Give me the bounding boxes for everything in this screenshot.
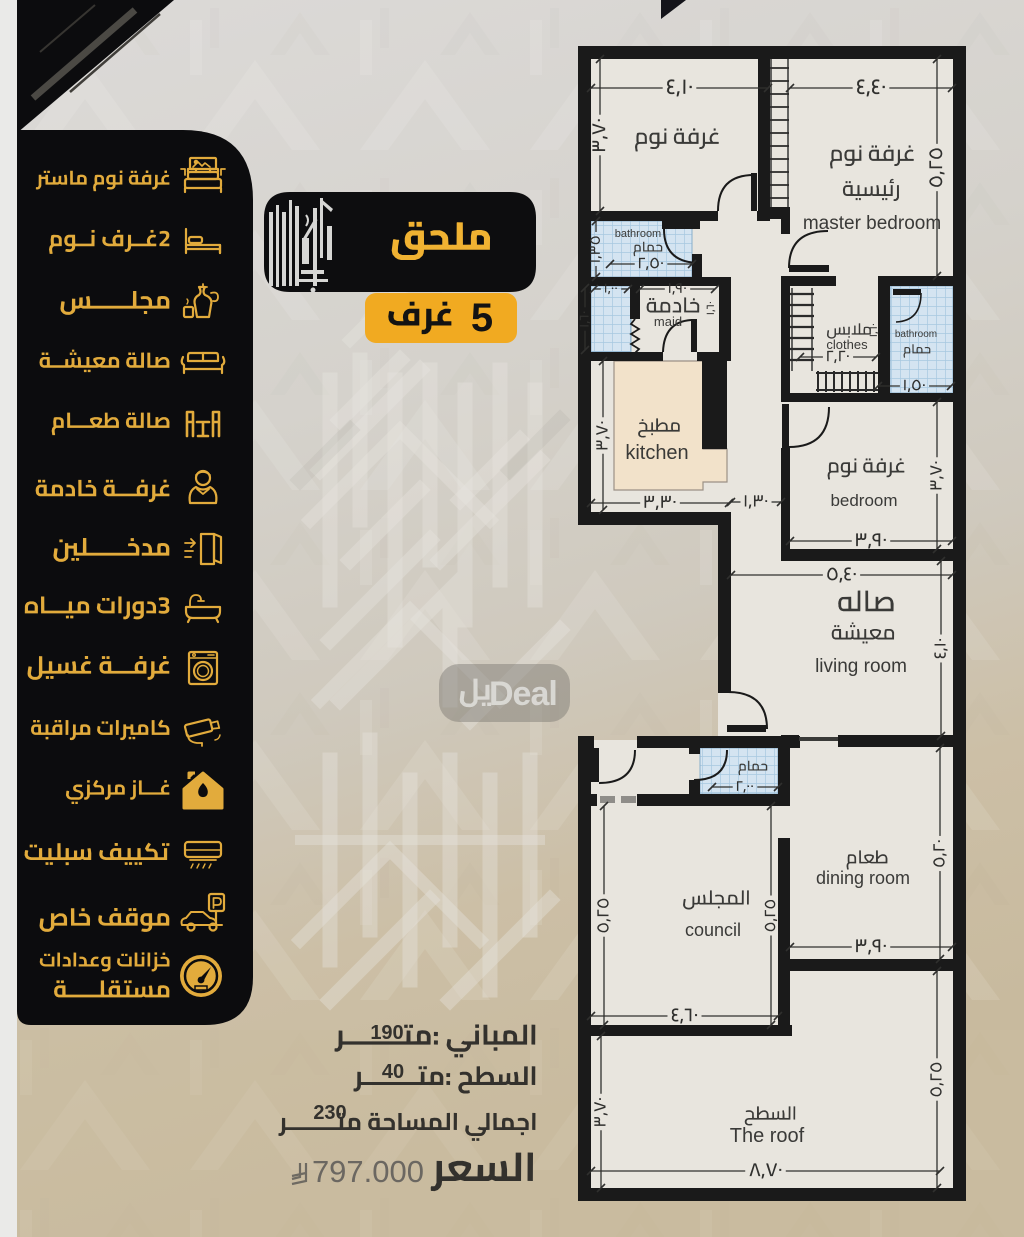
svg-text:bathroom: bathroom [615, 228, 661, 240]
svg-text:master bedroom: master bedroom [803, 213, 941, 234]
svg-text:bathroom: bathroom [895, 329, 937, 340]
svg-text:clothes: clothes [826, 337, 868, 352]
svg-text:40: 40 [382, 1061, 404, 1083]
svg-text:The roof: The roof [730, 1125, 805, 1147]
svg-text:5: 5 [471, 296, 493, 340]
svg-text:council: council [685, 920, 741, 940]
svg-text:kitchen: kitchen [625, 442, 688, 464]
svg-text:230: 230 [313, 1102, 346, 1124]
svg-text:Deal: Deal [489, 675, 557, 713]
svg-text:dining room: dining room [816, 868, 910, 888]
svg-text:190: 190 [370, 1022, 403, 1044]
svg-text:living room: living room [815, 656, 907, 677]
svg-text:797.000: 797.000 [312, 1154, 424, 1189]
svg-text:maid: maid [654, 314, 682, 329]
svg-text:bedroom: bedroom [830, 491, 897, 510]
